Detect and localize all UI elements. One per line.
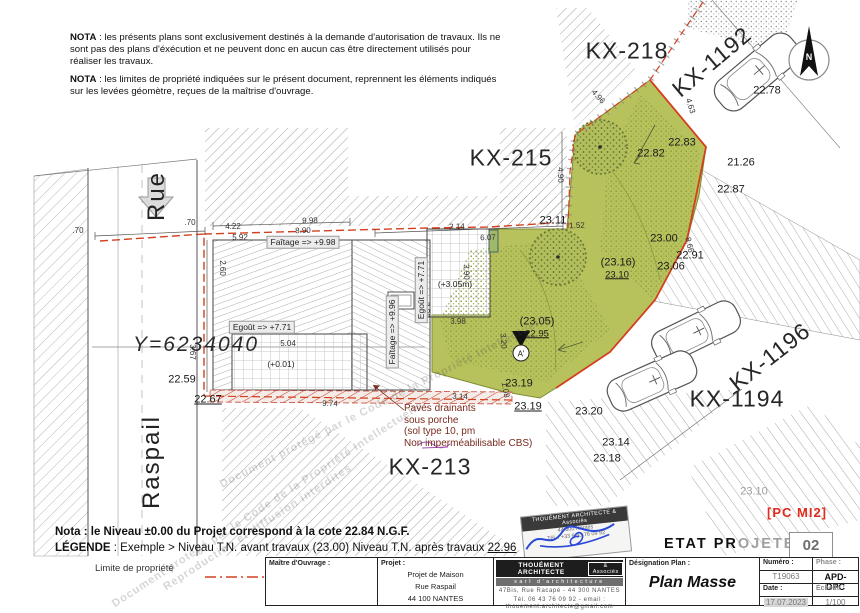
phase-value: APD-DPC <box>813 571 858 584</box>
etat-part2: OJETE <box>738 536 796 552</box>
north-arrow: N <box>789 26 829 80</box>
tree <box>530 229 586 285</box>
architect-name: THOUÉMENT ARCHITECTE <box>496 562 586 576</box>
project-line: Projet de Maison <box>381 570 490 579</box>
echelle-value: 1/100 <box>813 597 858 609</box>
titleblock-project-cell: Projet : Projet de Maison Rue Raspail 44… <box>378 558 494 605</box>
date-value: 17.07.2023 <box>764 598 808 607</box>
legende-line: LÉGENDE : Exemple > Niveau T.N. avant tr… <box>55 542 516 554</box>
plan-title: Plan Masse <box>629 574 756 592</box>
north-letter: N <box>806 52 813 62</box>
architect-name-bar: THOUÉMENT ARCHITECTE & Associés <box>496 560 623 577</box>
site-plan-page: N A' Rue Raspail Y=6234040 Pavés drainan… <box>0 0 860 613</box>
nota-paragraph: NOTA : les limites de propriété indiquée… <box>70 74 502 98</box>
echelle-label: Échelle : <box>816 585 845 592</box>
courtyard-paving <box>232 334 367 390</box>
nota-text: : les limites de propriété indiquées sur… <box>70 74 496 97</box>
limite-propriete-label: Limite de propriété <box>95 563 174 574</box>
street-direction-arrow <box>139 178 173 217</box>
terrace-paving <box>427 229 490 317</box>
owner-label: Maître d'Ouvrage : <box>269 560 330 567</box>
architect-contact: Tél. 06 43 76 09 92 - email : thouement.… <box>496 597 623 611</box>
title-block: Maître d'Ouvrage : Projet : Projet de Ma… <box>265 557 859 606</box>
sheet-number-box: 02 <box>789 532 833 558</box>
section-marker-label: A' <box>518 350 525 359</box>
nota-text: : les présents plans sont exclusivement … <box>70 32 500 67</box>
architect-address: 47Bis, Rue Racapé - 44 300 NANTES <box>496 588 623 595</box>
legende-label: LÉGENDE <box>55 542 111 554</box>
chimney <box>388 292 414 309</box>
date-label: Date : <box>763 585 782 592</box>
titleblock-architect-cell: THOUÉMENT ARCHITECTE & Associés sarl d'a… <box>494 558 626 605</box>
titleblock-owner-cell: Maître d'Ouvrage : <box>266 558 378 605</box>
nota-label: NOTA <box>70 32 96 43</box>
project-line: 44 100 NANTES <box>381 594 490 603</box>
revision-tag: [PC MI2] <box>767 505 827 520</box>
titleblock-phase-cell: Phase : APD-DPC Échelle : 1/100 <box>813 558 858 605</box>
titleblock-number-cell: Numéro : T19063 Date : 17.07.2023 <box>760 558 813 605</box>
nota-niveau-line: Nota : le Niveau ±0.00 du Projet corresp… <box>55 526 410 538</box>
sheet-number: 02 <box>803 537 820 554</box>
numero-value: T19063 <box>760 571 812 584</box>
project-label: Projet : <box>381 560 405 567</box>
annotation-scribble <box>418 442 450 448</box>
titleblock-designation-cell: Désignation Plan : Plan Masse <box>626 558 760 605</box>
etat-part1: ETAT PR <box>664 536 738 552</box>
etat-projete-label: ETAT PROJETE <box>664 536 795 552</box>
project-line: Rue Raspail <box>381 582 490 591</box>
entrance-gate <box>489 230 498 252</box>
nota-paragraph: NOTA : les présents plans sont exclusive… <box>70 32 502 68</box>
tree <box>573 120 627 174</box>
legende-after-value: 22.96 <box>488 542 517 554</box>
legende-text: : Exemple > Niveau T.N. avant travaux (2… <box>111 542 488 554</box>
numero-label: Numéro : <box>763 559 794 566</box>
phase-label: Phase : <box>816 559 841 566</box>
designation-label: Désignation Plan : <box>629 560 690 567</box>
nota-block: NOTA : les présents plans sont exclusive… <box>70 32 502 104</box>
architect-assoc: & Associés <box>588 562 623 576</box>
architect-subtitle: sarl d'architecture <box>496 578 623 586</box>
nota-label: NOTA <box>70 74 96 85</box>
